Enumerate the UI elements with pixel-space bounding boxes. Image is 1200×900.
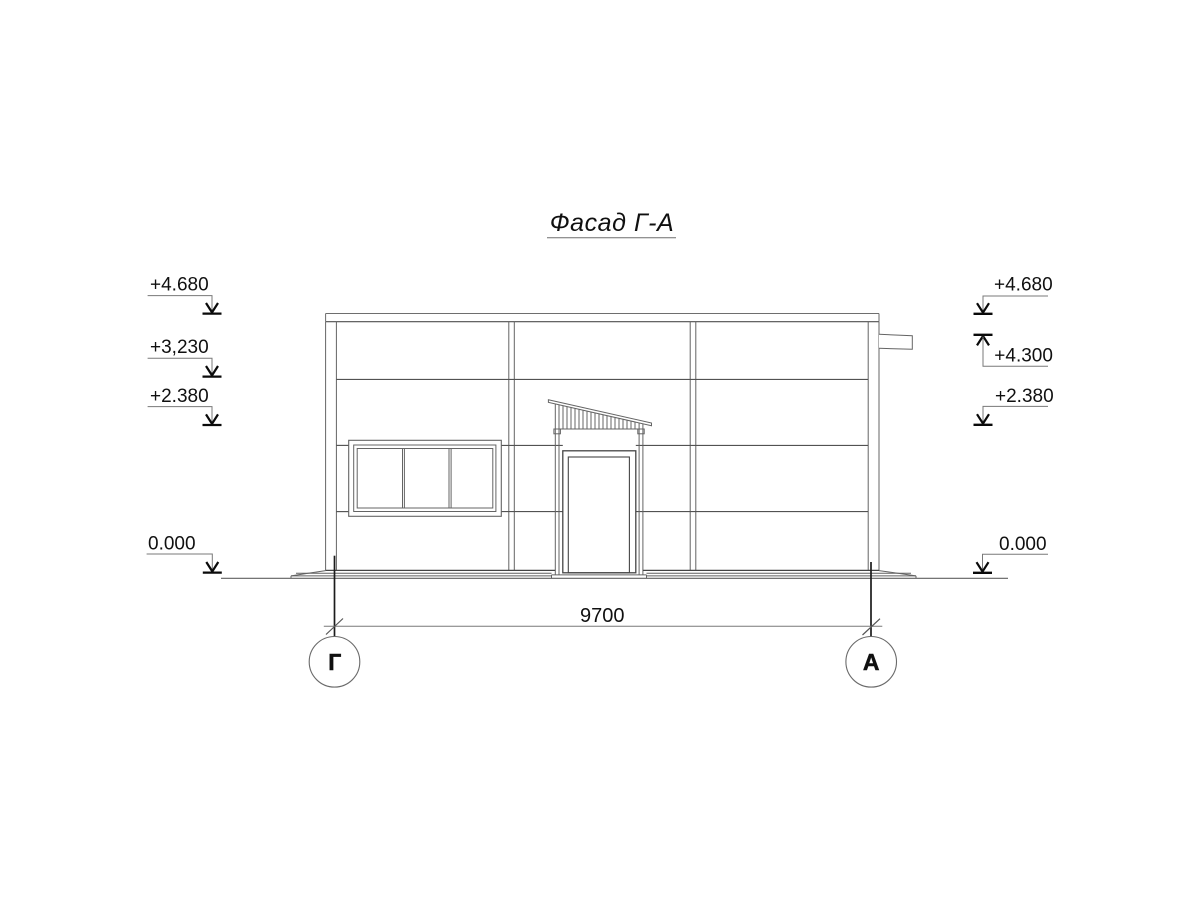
svg-text:+4.680: +4.680: [994, 275, 1053, 296]
svg-text:+4.300: +4.300: [994, 346, 1053, 367]
svg-text:+3,230: +3,230: [150, 337, 209, 358]
svg-text:А: А: [863, 649, 880, 675]
svg-text:9700: 9700: [580, 605, 625, 627]
svg-text:+2.380: +2.380: [995, 386, 1054, 407]
svg-text:0.000: 0.000: [999, 534, 1047, 555]
svg-text:0.000: 0.000: [148, 534, 196, 555]
svg-text:+4.680: +4.680: [150, 275, 209, 296]
svg-text:+2.380: +2.380: [150, 386, 209, 407]
svg-text:Фасад Г-А: Фасад Г-А: [550, 209, 675, 237]
svg-text:Г: Г: [328, 649, 341, 675]
